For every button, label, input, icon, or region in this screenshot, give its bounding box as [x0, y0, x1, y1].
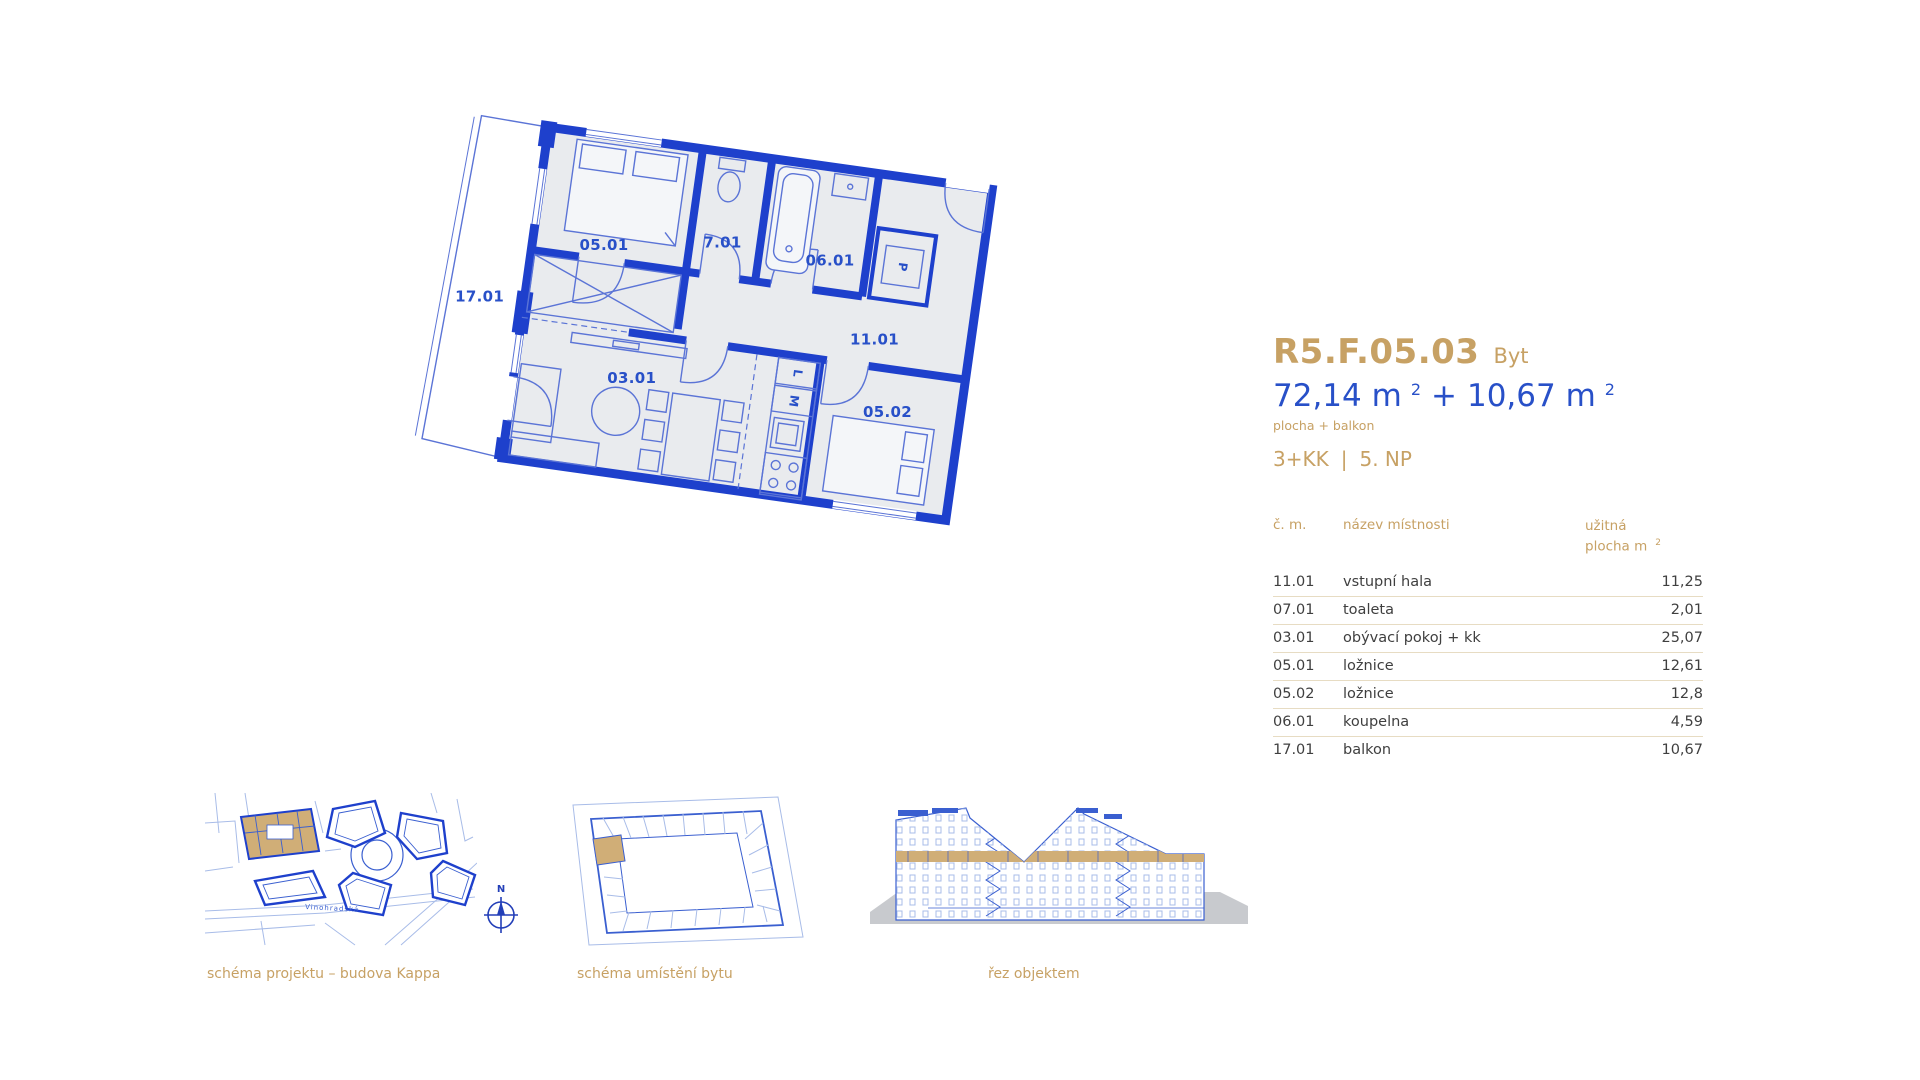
table-row: 06.01 koupelna 4,59 — [1273, 709, 1703, 737]
room-id: 11.01 — [1273, 574, 1343, 590]
floor-plan-drawing: P — [420, 95, 1020, 565]
header-area-line1: užitná — [1585, 517, 1703, 537]
section-drawing — [868, 788, 1250, 943]
table-row: 03.01 obývací pokoj + kk 25,07 — [1273, 625, 1703, 653]
room-divisions — [598, 811, 780, 931]
washer-label: M — [786, 394, 802, 408]
building-outer-outline — [573, 797, 803, 945]
unit-location-drawing — [563, 793, 811, 953]
floor-highlight-band — [896, 851, 1204, 862]
room-label-1101: 11.01 — [850, 331, 899, 349]
area-balcony-sup: 2 — [1605, 380, 1615, 399]
room-id: 05.01 — [1273, 658, 1343, 674]
kappa-building-highlight — [241, 809, 319, 859]
compass-north-label: N — [497, 884, 505, 895]
area-note: plocha + balkon — [1273, 418, 1703, 433]
room-area: 4,59 — [1585, 714, 1703, 730]
room-name: obývací pokoj + kk — [1343, 630, 1585, 646]
floor-level: 5. NP — [1359, 447, 1411, 471]
separator: | — [1341, 447, 1348, 471]
brochure-page: P — [0, 0, 1920, 1080]
room-area: 12,8 — [1585, 686, 1703, 702]
floor-plan: P — [420, 95, 1020, 565]
area-plus: + — [1431, 378, 1457, 414]
header-area: užitná plocha m2 — [1585, 517, 1703, 557]
site-map-drawing: Vinohradská — [205, 793, 477, 948]
street-name-label: Vinohradská — [305, 903, 360, 914]
area-main-sup: 2 — [1411, 380, 1421, 399]
table-row: 11.01 vstupní hala 11,25 — [1273, 569, 1703, 597]
unit-location-figure — [563, 793, 811, 957]
unit-location-caption: schéma umístění bytu — [577, 966, 733, 982]
room-label-0301: 03.01 — [607, 369, 656, 387]
window-grid — [896, 808, 1204, 920]
room-name: toaleta — [1343, 602, 1585, 618]
unit-title: R5.F.05.03 Byt — [1273, 332, 1703, 372]
table-row: 05.01 ložnice 12,61 — [1273, 653, 1703, 681]
room-area: 2,01 — [1585, 602, 1703, 618]
header-room-name: název místnosti — [1343, 517, 1585, 557]
room-name: ložnice — [1343, 686, 1585, 702]
room-name: ložnice — [1343, 658, 1585, 674]
unit-type-label: Byt — [1493, 344, 1528, 368]
room-area: 12,61 — [1585, 658, 1703, 674]
room-label-1701: 17.01 — [455, 287, 504, 305]
room-name: vstupní hala — [1343, 574, 1585, 590]
room-id: 07.01 — [1273, 602, 1343, 618]
room-table: č. m. název místnosti užitná plocha m2 1… — [1273, 517, 1703, 764]
unit-code: R5.F.05.03 — [1273, 332, 1479, 372]
bed-icon-0502 — [823, 416, 935, 505]
room-id: 17.01 — [1273, 742, 1343, 758]
courtyard-outline — [617, 833, 753, 913]
header-room-number: č. m. — [1273, 517, 1343, 557]
room-label-0701: 7.01 — [703, 234, 741, 252]
site-map-figure: Vinohradská — [205, 793, 477, 952]
room-id: 03.01 — [1273, 630, 1343, 646]
unit-info: R5.F.05.03 Byt 72,14 m2+10,67 m2 plocha … — [1273, 332, 1703, 764]
area-main: 72,14 m — [1273, 378, 1402, 414]
table-row: 05.02 ložnice 12,8 — [1273, 681, 1703, 709]
room-label-0501: 05.01 — [580, 236, 629, 254]
unit-highlight — [593, 835, 625, 865]
room-area: 11,25 — [1585, 574, 1703, 590]
section-caption: řez objektem — [988, 966, 1080, 982]
room-id: 06.01 — [1273, 714, 1343, 730]
table-header: č. m. název místnosti užitná plocha m2 — [1273, 517, 1703, 569]
room-label-0601: 06.01 — [806, 252, 855, 270]
room-area: 10,67 — [1585, 742, 1703, 758]
disposition: 3+KK — [1273, 447, 1329, 471]
unit-layout: 3+KK | 5. NP — [1273, 447, 1703, 471]
header-area-line2: plocha m2 — [1585, 537, 1703, 557]
room-name: balkon — [1343, 742, 1585, 758]
area-balcony: 10,67 m — [1467, 378, 1596, 414]
table-row: 07.01 toaleta 2,01 — [1273, 597, 1703, 625]
table-row: 17.01 balkon 10,67 — [1273, 737, 1703, 764]
bed-icon-0501 — [564, 139, 688, 246]
room-label-0502: 05.02 — [863, 403, 912, 421]
room-area: 25,07 — [1585, 630, 1703, 646]
room-id: 05.02 — [1273, 686, 1343, 702]
unit-area: 72,14 m2+10,67 m2 — [1273, 378, 1703, 414]
section-figure — [868, 788, 1250, 947]
room-name: koupelna — [1343, 714, 1585, 730]
site-map-caption: schéma projektu – budova Kappa — [207, 966, 440, 982]
compass-icon: N — [479, 880, 523, 942]
